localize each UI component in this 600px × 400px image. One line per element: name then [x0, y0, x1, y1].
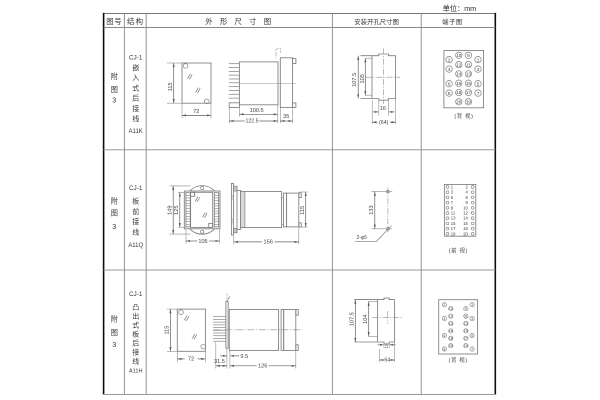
svg-text:18: 18: [456, 90, 462, 95]
svg-text:104: 104: [363, 315, 369, 324]
svg-text:122.5: 122.5: [246, 119, 259, 125]
svg-text:16: 16: [456, 81, 462, 86]
svg-text:(前 视): (前 视): [449, 246, 468, 254]
svg-text:出: 出: [132, 312, 139, 321]
svg-text:接: 接: [132, 217, 139, 226]
svg-text:31.5: 31.5: [214, 359, 225, 365]
svg-text:72: 72: [193, 109, 199, 115]
svg-text:线: 线: [132, 114, 139, 123]
svg-text:16: 16: [449, 329, 453, 333]
svg-text:图号: 图号: [106, 17, 122, 26]
svg-text:附: 附: [111, 72, 118, 81]
svg-text:115: 115: [165, 326, 171, 335]
svg-text:9: 9: [467, 53, 470, 58]
svg-text:18: 18: [449, 337, 453, 341]
svg-text:16: 16: [384, 343, 390, 349]
svg-text:10: 10: [456, 53, 462, 58]
svg-text:7: 7: [477, 91, 480, 96]
svg-text:64: 64: [384, 357, 390, 363]
svg-text:35: 35: [283, 114, 289, 120]
svg-text:式: 式: [132, 83, 139, 92]
svg-text:5: 5: [477, 81, 480, 86]
svg-text:3: 3: [112, 222, 116, 231]
svg-text:安装开孔尺寸图: 安装开孔尺寸图: [354, 17, 399, 26]
svg-text:100.5: 100.5: [250, 108, 264, 114]
svg-text:前: 前: [132, 207, 139, 216]
svg-text:后: 后: [132, 94, 139, 103]
svg-text:外 形 尺 寸 图: 外 形 尺 寸 图: [205, 17, 274, 26]
svg-text:CJ-1: CJ-1: [129, 291, 143, 298]
svg-text:1: 1: [471, 303, 473, 307]
svg-text:125: 125: [174, 206, 180, 215]
svg-text:11: 11: [464, 314, 468, 318]
svg-text:72: 72: [188, 357, 194, 363]
svg-text:3: 3: [112, 340, 116, 349]
svg-text:3: 3: [471, 317, 473, 321]
svg-text:CJ-1: CJ-1: [129, 55, 143, 62]
svg-text:结构: 结构: [127, 17, 144, 26]
svg-text:嵌: 嵌: [132, 64, 139, 72]
svg-text:6: 6: [448, 81, 451, 86]
svg-text:20: 20: [463, 231, 468, 236]
svg-text:17: 17: [466, 90, 472, 95]
svg-text:126: 126: [258, 364, 267, 370]
svg-text:6: 6: [443, 334, 445, 338]
svg-text:3: 3: [112, 96, 116, 105]
svg-text:入: 入: [132, 74, 139, 82]
svg-text:板: 板: [132, 197, 139, 206]
svg-text:后: 后: [132, 339, 139, 348]
svg-text:107.5: 107.5: [350, 312, 356, 326]
svg-text:17: 17: [464, 337, 468, 341]
svg-text:附: 附: [111, 315, 118, 324]
svg-text:7: 7: [471, 347, 473, 351]
svg-text:接: 接: [132, 104, 139, 113]
svg-text:式: 式: [132, 321, 139, 330]
svg-text:19: 19: [464, 344, 468, 348]
svg-text:13: 13: [466, 72, 472, 77]
svg-text:5: 5: [471, 334, 473, 338]
svg-text:图: 图: [111, 209, 118, 218]
svg-text:9: 9: [465, 307, 467, 311]
svg-text:(背 视): (背 视): [454, 112, 473, 120]
svg-text:8: 8: [448, 91, 451, 96]
svg-text:1: 1: [477, 57, 480, 62]
svg-text:15: 15: [466, 81, 472, 86]
svg-text:3: 3: [477, 67, 480, 72]
svg-text:156: 156: [264, 240, 273, 246]
svg-text:105: 105: [198, 239, 207, 245]
svg-text:20: 20: [449, 344, 453, 348]
svg-text:4: 4: [448, 67, 451, 72]
svg-text:13: 13: [464, 322, 468, 326]
svg-text:单位：mm: 单位：mm: [443, 4, 477, 13]
svg-text:A11H: A11H: [129, 369, 143, 375]
svg-text:105: 105: [360, 74, 366, 83]
svg-text:2: 2: [448, 57, 451, 62]
svg-text:19: 19: [466, 100, 472, 105]
svg-text:凸: 凸: [132, 304, 139, 312]
svg-text:A11Q: A11Q: [128, 243, 143, 249]
svg-text:14: 14: [449, 322, 453, 326]
svg-text:(背 视): (背 视): [449, 356, 468, 364]
svg-text:A11K: A11K: [129, 129, 143, 135]
svg-text:149: 149: [167, 206, 173, 215]
svg-text:端子图: 端子图: [442, 17, 463, 26]
svg-text:12: 12: [449, 314, 453, 318]
svg-text:(64): (64): [379, 120, 389, 126]
svg-text:19: 19: [451, 231, 456, 236]
svg-text:15: 15: [464, 329, 468, 333]
svg-text:接: 接: [132, 348, 139, 357]
svg-text:4: 4: [443, 317, 445, 321]
svg-text:板: 板: [132, 330, 139, 339]
svg-text:线: 线: [132, 227, 139, 236]
svg-text:115: 115: [300, 206, 306, 215]
svg-text:10: 10: [449, 307, 453, 311]
svg-text:16: 16: [380, 106, 386, 112]
svg-text:14: 14: [456, 72, 462, 77]
svg-text:115: 115: [168, 82, 174, 91]
svg-text:12: 12: [456, 62, 462, 67]
svg-text:8: 8: [443, 347, 445, 351]
svg-text:CJ-1: CJ-1: [129, 185, 143, 192]
svg-text:9.5: 9.5: [240, 354, 248, 360]
svg-text:线: 线: [132, 357, 139, 366]
svg-text:2: 2: [443, 303, 445, 307]
svg-text:107.5: 107.5: [352, 73, 358, 87]
svg-text:20: 20: [456, 100, 462, 105]
svg-text:附: 附: [111, 197, 118, 206]
svg-text:图: 图: [111, 328, 118, 337]
svg-text:133: 133: [369, 205, 375, 214]
svg-text:11: 11: [466, 62, 471, 67]
svg-text:2-φ5: 2-φ5: [356, 235, 367, 241]
svg-text:图: 图: [111, 85, 118, 94]
